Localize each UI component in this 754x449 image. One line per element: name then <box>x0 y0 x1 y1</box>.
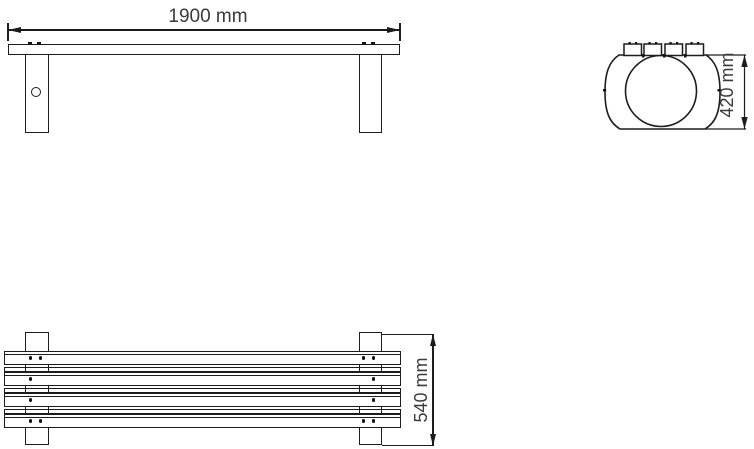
slat-edge-line <box>5 396 400 397</box>
screw-dot <box>372 377 376 381</box>
seat-screw-mark <box>28 42 32 44</box>
junction-mark <box>684 54 687 58</box>
junction-mark <box>642 54 645 58</box>
screw-tick <box>670 42 672 45</box>
leg-hole <box>31 87 41 97</box>
screw-tick <box>635 42 637 45</box>
front-dim-arrow-left-icon <box>8 27 21 33</box>
plan-slat-1 <box>4 351 401 366</box>
plan-slat-4 <box>4 414 401 429</box>
screw-dot <box>29 377 33 381</box>
plan-slat-2 <box>4 372 401 387</box>
side-height-dim-label: 420 mm <box>717 45 737 125</box>
screw-dot <box>362 419 366 423</box>
slat-edge-line <box>5 375 400 376</box>
screw-dot <box>362 356 366 360</box>
side-dim-arrow-down-icon <box>741 117 747 129</box>
plan-dim-line <box>432 334 433 446</box>
screw-dot <box>372 398 376 402</box>
screw-tick <box>697 42 699 45</box>
plan-ext-line-bottom <box>382 445 433 446</box>
screw-dot <box>372 419 376 423</box>
plan-dim-arrow-down-icon <box>430 434 436 446</box>
screw-dot <box>39 419 43 423</box>
plan-slat-3 <box>4 393 401 408</box>
front-leg-right <box>359 54 383 133</box>
side-slat-end <box>624 44 642 56</box>
screw-tick <box>649 42 651 45</box>
screw-tick <box>691 42 693 45</box>
side-slat-end <box>644 44 662 56</box>
screw-dot <box>29 419 33 423</box>
screw-dot <box>39 356 43 360</box>
side-tick <box>603 89 606 92</box>
front-dim-arrow-right-icon <box>387 27 400 33</box>
seat-screw-mark <box>37 42 41 44</box>
seat-board-front <box>8 44 400 55</box>
slat-edge-line <box>5 354 400 355</box>
screw-dot <box>372 356 376 360</box>
side-body-outline <box>605 55 720 129</box>
plan-dim-arrow-up-icon <box>430 334 436 346</box>
front-width-dim-label: 1900 mm <box>108 7 308 27</box>
bench-technical-drawing: 1900 mm <box>0 0 754 449</box>
front-dim-line <box>8 29 400 30</box>
screw-dot <box>29 398 33 402</box>
side-slat-end <box>665 44 683 56</box>
screw-tick <box>676 42 678 45</box>
screw-dot <box>29 356 33 360</box>
plan-depth-dim-label: 540 mm <box>411 350 431 430</box>
screw-tick <box>629 42 631 45</box>
junction-mark <box>663 54 666 58</box>
seat-screw-mark <box>362 42 366 44</box>
seat-screw-mark <box>371 42 375 44</box>
slat-edge-line <box>5 417 400 418</box>
side-dim-arrow-up-icon <box>741 55 747 67</box>
plan-ext-line-top <box>382 334 433 335</box>
screw-tick <box>655 42 657 45</box>
side-slat-end <box>686 44 704 56</box>
